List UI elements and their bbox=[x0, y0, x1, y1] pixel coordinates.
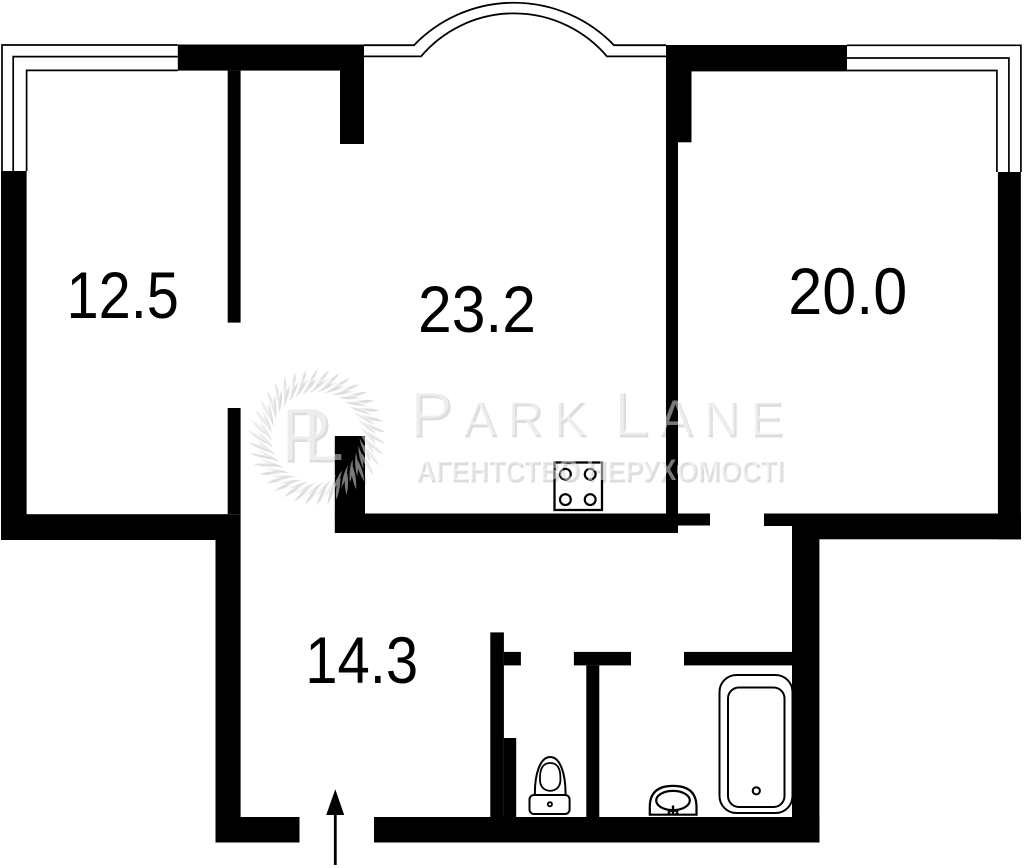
svg-text:12.5: 12.5 bbox=[66, 258, 179, 332]
svg-text:L: L bbox=[301, 391, 344, 477]
svg-text:14.3: 14.3 bbox=[305, 623, 418, 697]
svg-text:23.2: 23.2 bbox=[418, 272, 536, 346]
svg-text:20.0: 20.0 bbox=[788, 254, 907, 328]
svg-text:АГЕНТСТВО НЕРУХОМОСТІ: АГЕНТСТВО НЕРУХОМОСТІ bbox=[415, 454, 783, 487]
